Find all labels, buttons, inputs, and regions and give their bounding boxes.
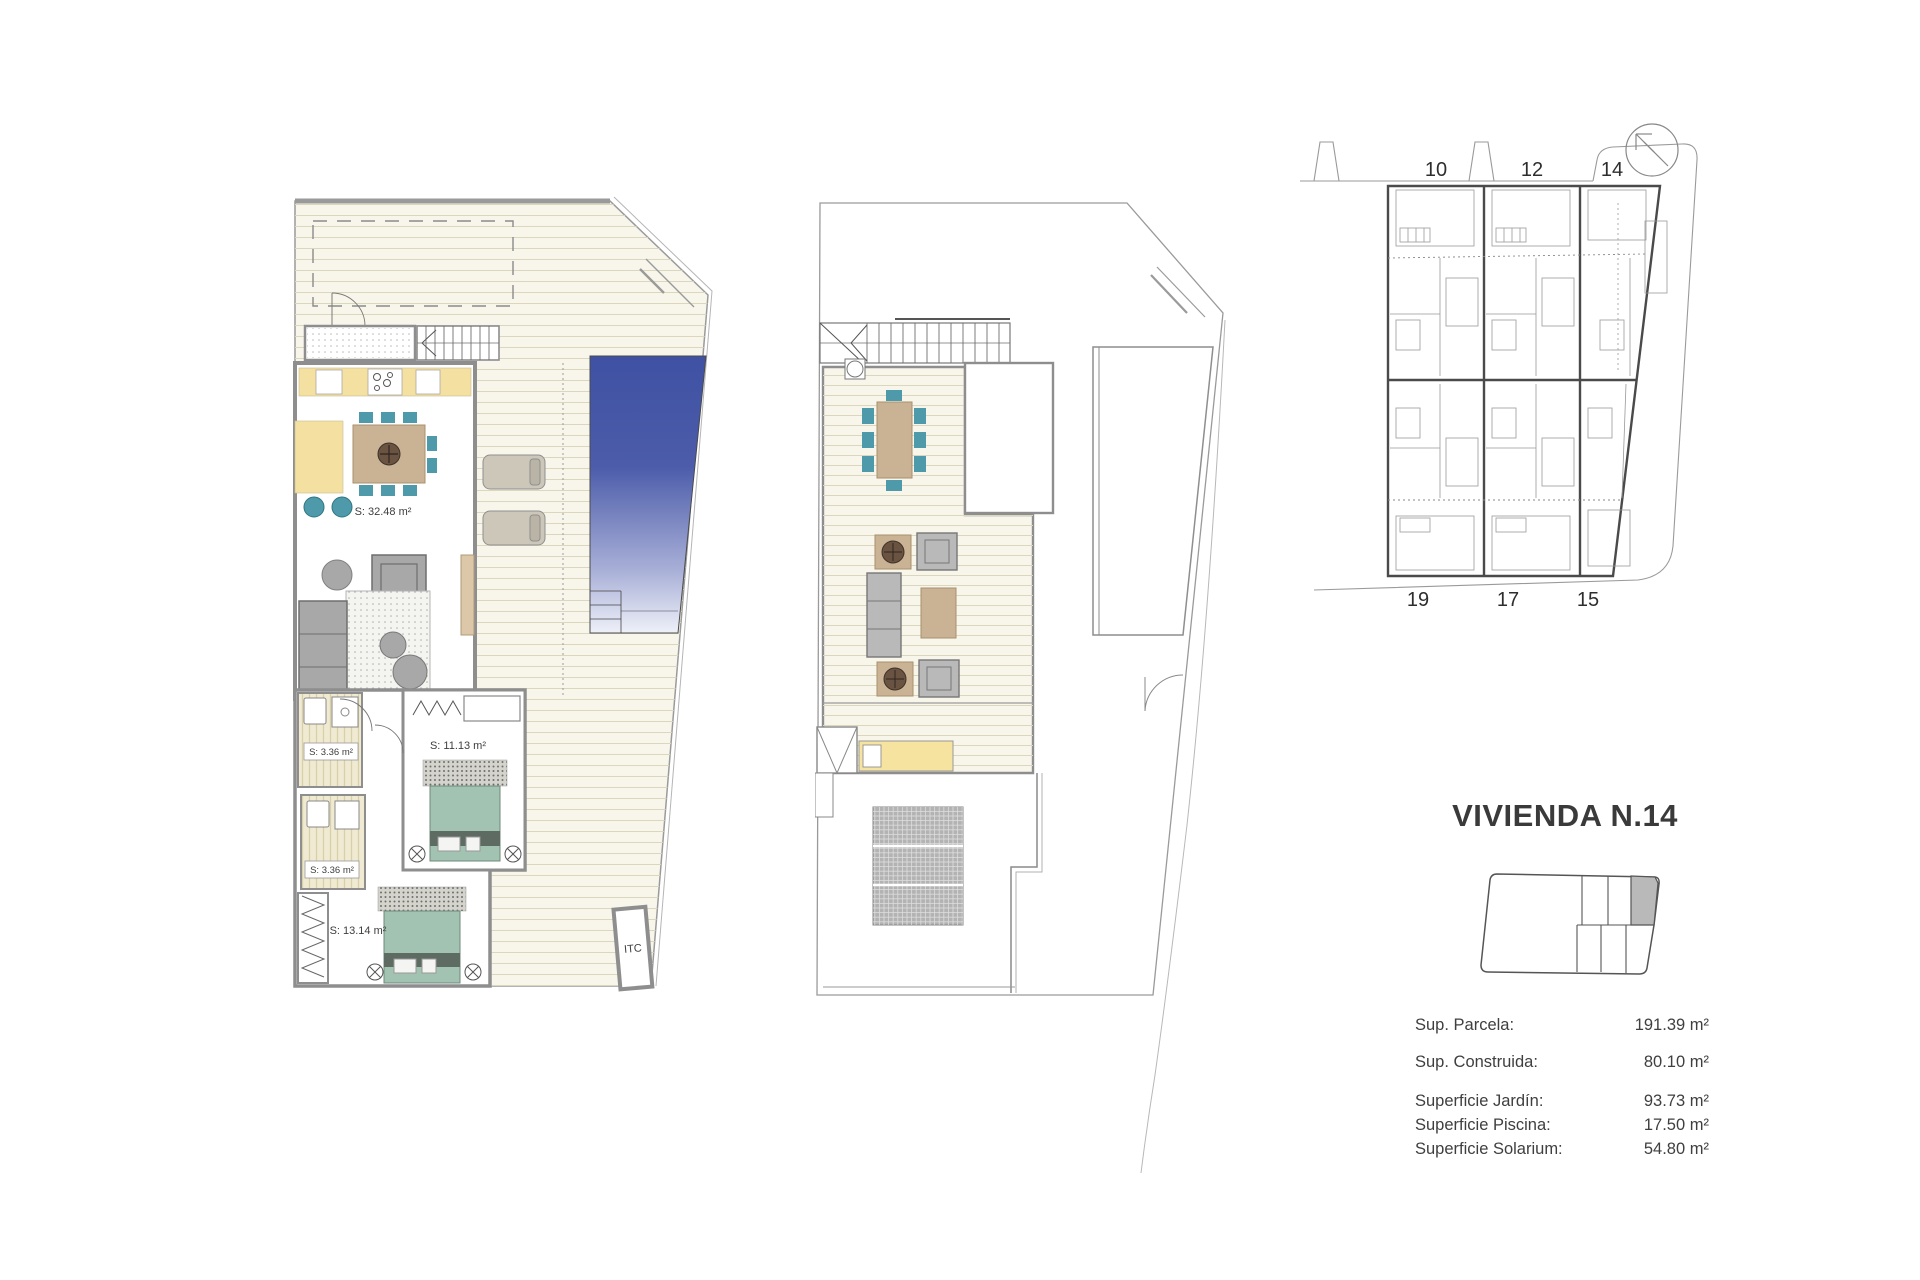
double-bed [384,911,460,983]
bedroom2-label: S: 13.14 m² [330,925,387,937]
living-area-label: S: 32.48 m² [355,506,412,518]
itc-room: ITC [613,907,652,989]
bathroom2-label: S: 3.36 m² [310,865,354,876]
spec-value: 80.10 m² [1644,1053,1709,1072]
bedroom-2: S: 13.14 m² [298,887,481,983]
spec-value: 17.50 m² [1644,1116,1709,1135]
spec-row-construida: Sup. Construida: 80.10 m² [1415,1053,1709,1072]
unit-label-12: 12 [1521,159,1543,181]
spec-row-parcela: Sup. Parcela: 191.39 m² [1415,1016,1709,1035]
unit-info-block: VIVIENDA N.14 [1400,798,1730,834]
bedroom-wing: S: 3.36 m² S: 3.36 m² [295,690,525,986]
spec-row-piscina: Superficie Piscina: 17.50 m² [1415,1116,1709,1135]
double-bed [430,786,500,861]
bathroom-1: S: 3.36 m² [298,693,362,787]
bathroom1-label: S: 3.36 m² [309,747,353,758]
tv-cabinet [461,555,474,635]
unit-label-14: 14 [1601,159,1623,181]
kitchen-counter [299,368,471,396]
bathroom-2: S: 3.36 m² [301,795,365,889]
spec-label: Superficie Jardín: [1415,1092,1543,1111]
unit-label-19: 19 [1407,589,1429,611]
staircase [417,326,499,360]
bedroom-1: S: 11.13 m² [403,690,525,870]
building-block [1388,186,1667,576]
utility-room [305,326,415,360]
spec-label: Sup. Construida: [1415,1053,1538,1072]
unit-locator-plan [1470,862,1670,987]
hob-icon [368,369,402,395]
surface-specs: Sup. Parcela: 191.39 m² Sup. Construida:… [1415,1016,1709,1159]
unit-label-17: 17 [1497,589,1519,611]
spec-row-solarium: Superficie Solarium: 54.80 m² [1415,1140,1709,1159]
spec-value: 93.73 m² [1644,1092,1709,1111]
stair-bulkhead [965,363,1053,513]
stool [304,497,324,517]
highlighted-unit-cell [1631,876,1658,925]
itc-label: ITC [624,942,643,956]
page-title: VIVIENDA N.14 [1400,798,1730,834]
north-compass [1626,124,1678,176]
spec-value: 54.80 m² [1644,1140,1709,1159]
pool [590,356,706,633]
unit-label-10: 10 [1425,159,1447,181]
ground-floor-plan: S: 32.48 m² S: 3.36 m² [280,193,725,998]
spec-label: Sup. Parcela: [1415,1016,1514,1035]
kitchen-island [295,421,343,493]
wardrobe [298,893,328,983]
dining-table [353,412,437,496]
site-plan: 10 12 14 19 17 15 [1300,108,1710,618]
floorplan-sheet: S: 32.48 m² S: 3.36 m² [0,0,1920,1280]
stool [332,497,352,517]
solarium-floor-plan [815,195,1250,1180]
bedroom1-label: S: 11.13 m² [430,740,486,752]
unit-label-15: 15 [1577,589,1599,611]
spec-label: Superficie Solarium: [1415,1140,1563,1159]
skylight-grid [873,807,963,925]
spec-value: 191.39 m² [1635,1016,1709,1035]
spec-row-jardin: Superficie Jardín: 93.73 m² [1415,1092,1709,1111]
spec-label: Superficie Piscina: [1415,1116,1551,1135]
living-kitchen-room: S: 32.48 m² [295,363,475,711]
